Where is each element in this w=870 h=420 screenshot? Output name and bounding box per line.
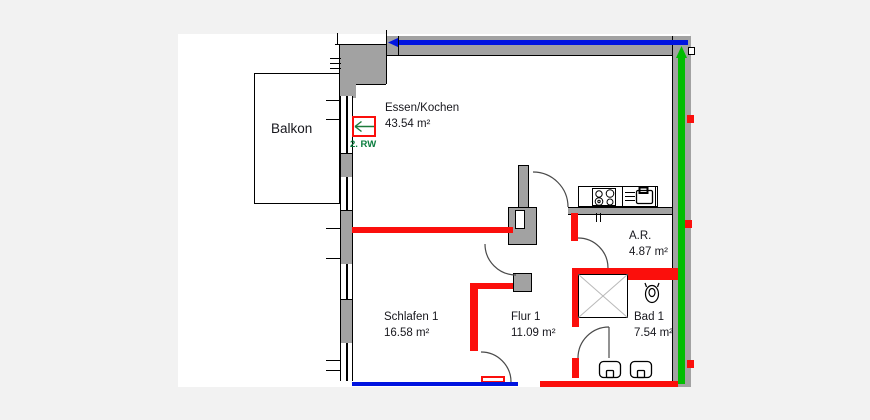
room-label-ar: A.R. 4.87 m² — [629, 228, 668, 260]
door-swing-arc — [485, 244, 516, 275]
room-label-bad-1: Bad 1 7.54 m² — [634, 309, 673, 341]
floor-plan-canvas: Balkon Essen/Kochen 43.54 m² 2. RW A.R. … — [0, 0, 870, 420]
construction-lines — [335, 30, 601, 222]
room-label-balkon: Balkon — [271, 121, 312, 136]
room-area: 11.09 m² — [511, 325, 556, 341]
shower-icon — [579, 275, 628, 318]
room-label-flur-1: Flur 1 11.09 m² — [511, 309, 556, 341]
room-label-schlafen-1: Schlafen 1 16.58 m² — [384, 309, 438, 341]
door-swing-arc — [578, 327, 609, 358]
room-name: Schlafen 1 — [384, 309, 438, 325]
room-area: 7.54 m² — [634, 325, 673, 341]
room-area: 43.54 m² — [385, 116, 459, 132]
room-name: A.R. — [629, 228, 668, 244]
room-area: 4.87 m² — [629, 244, 668, 260]
door-swing-arc — [578, 238, 608, 268]
escape-route-label: 2. RW — [350, 139, 376, 150]
plan-detail-overlay — [0, 0, 870, 420]
door-swing-arc — [481, 352, 511, 382]
room-name: Bad 1 — [634, 309, 673, 325]
room-name: Flur 1 — [511, 309, 556, 325]
escape-route-arrow — [355, 122, 374, 132]
room-label-essen-kochen: Essen/Kochen 43.54 m² — [385, 100, 459, 132]
dimension-ticks — [326, 59, 341, 371]
room-area: 16.58 m² — [384, 325, 438, 341]
blue-arrow-icon — [388, 38, 399, 48]
washbasin-icon — [600, 362, 621, 378]
wall-detail-box — [689, 48, 695, 55]
green-arrow-icon — [676, 46, 687, 58]
washbasin-icon — [631, 362, 652, 378]
room-name: Essen/Kochen — [385, 100, 459, 116]
door-swing-arc — [533, 172, 568, 207]
toilet-icon — [645, 283, 659, 303]
